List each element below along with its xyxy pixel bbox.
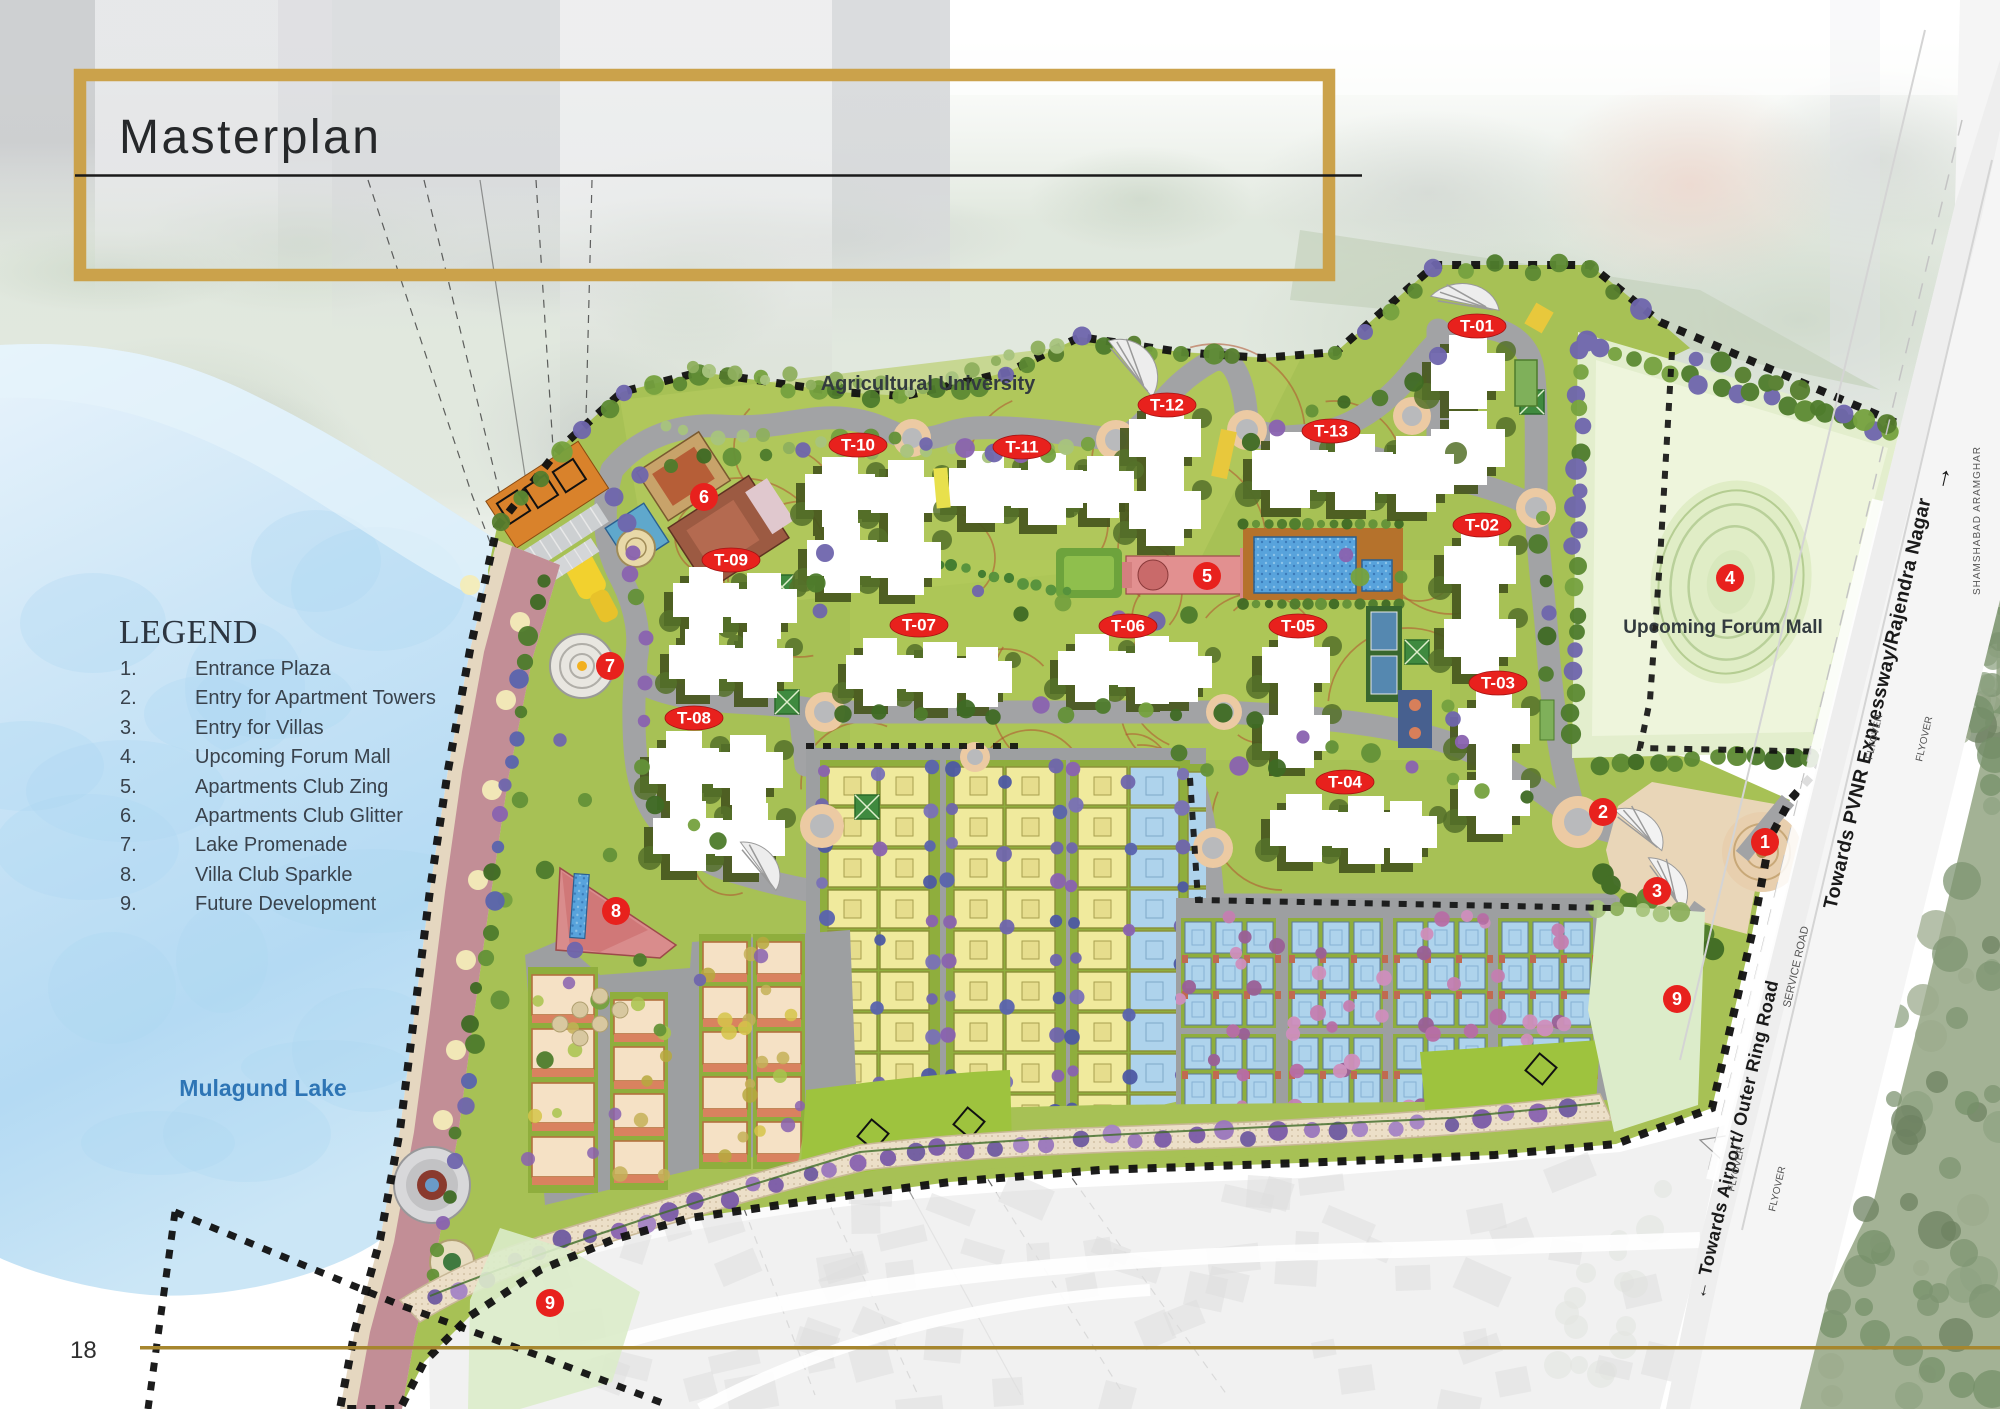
svg-text:9.: 9. xyxy=(120,893,137,915)
svg-text:Apartments Club Glitter: Apartments Club Glitter xyxy=(195,805,403,827)
svg-text:T-01: T-01 xyxy=(1460,317,1494,336)
svg-text:T-02: T-02 xyxy=(1465,516,1499,535)
svg-text:Mulagund Lake: Mulagund Lake xyxy=(179,1075,346,1101)
svg-text:3: 3 xyxy=(1652,881,1662,901)
svg-text:5.: 5. xyxy=(120,776,137,798)
svg-text:Upcoming Forum Mall: Upcoming Forum Mall xyxy=(1623,617,1823,638)
svg-text:8: 8 xyxy=(611,901,621,921)
svg-text:6.: 6. xyxy=(120,805,137,827)
svg-text:T-12: T-12 xyxy=(1150,396,1184,415)
svg-text:9: 9 xyxy=(1672,989,1682,1009)
svg-text:6: 6 xyxy=(699,487,709,507)
svg-text:T-04: T-04 xyxy=(1328,773,1363,792)
svg-text:18: 18 xyxy=(70,1337,97,1364)
svg-text:Future Development: Future Development xyxy=(195,893,377,915)
svg-text:LEGEND: LEGEND xyxy=(119,614,258,651)
svg-text:T-05: T-05 xyxy=(1281,617,1315,636)
svg-text:4: 4 xyxy=(1725,568,1735,588)
svg-text:Upcoming Forum Mall: Upcoming Forum Mall xyxy=(195,746,391,768)
svg-text:8.: 8. xyxy=(120,864,137,886)
svg-text:Entry for Villas: Entry for Villas xyxy=(195,717,324,739)
svg-text:T-08: T-08 xyxy=(677,709,711,728)
svg-text:3.: 3. xyxy=(120,717,137,739)
svg-text:Entrance Plaza: Entrance Plaza xyxy=(195,658,332,680)
svg-text:T-10: T-10 xyxy=(841,436,875,455)
svg-text:Apartments Club Zing: Apartments Club Zing xyxy=(195,776,388,798)
svg-text:4.: 4. xyxy=(120,746,137,768)
svg-text:1: 1 xyxy=(1760,832,1770,852)
svg-text:T-07: T-07 xyxy=(902,616,936,635)
svg-text:T-13: T-13 xyxy=(1314,422,1348,441)
svg-text:7: 7 xyxy=(605,656,615,676)
svg-text:Villa Club Sparkle: Villa Club Sparkle xyxy=(195,864,353,886)
svg-text:T-09: T-09 xyxy=(714,551,748,570)
svg-text:7.: 7. xyxy=(120,834,137,856)
svg-text:9: 9 xyxy=(545,1293,555,1313)
svg-text:2.: 2. xyxy=(120,687,137,709)
svg-text:SHAMSHABAD ARAMGHAR: SHAMSHABAD ARAMGHAR xyxy=(1972,446,1983,595)
svg-text:T-03: T-03 xyxy=(1481,674,1515,693)
svg-text:Lake Promenade: Lake Promenade xyxy=(195,834,347,856)
svg-text:Entry for Apartment Towers: Entry for Apartment Towers xyxy=(195,687,436,709)
svg-text:2: 2 xyxy=(1598,802,1608,822)
svg-text:T-11: T-11 xyxy=(1005,438,1038,457)
svg-text:1.: 1. xyxy=(120,658,137,680)
svg-text:T-06: T-06 xyxy=(1111,617,1145,636)
svg-text:5: 5 xyxy=(1202,566,1212,586)
svg-text:Masterplan: Masterplan xyxy=(119,111,381,164)
svg-text:Agricultural University: Agricultural University xyxy=(821,373,1036,395)
